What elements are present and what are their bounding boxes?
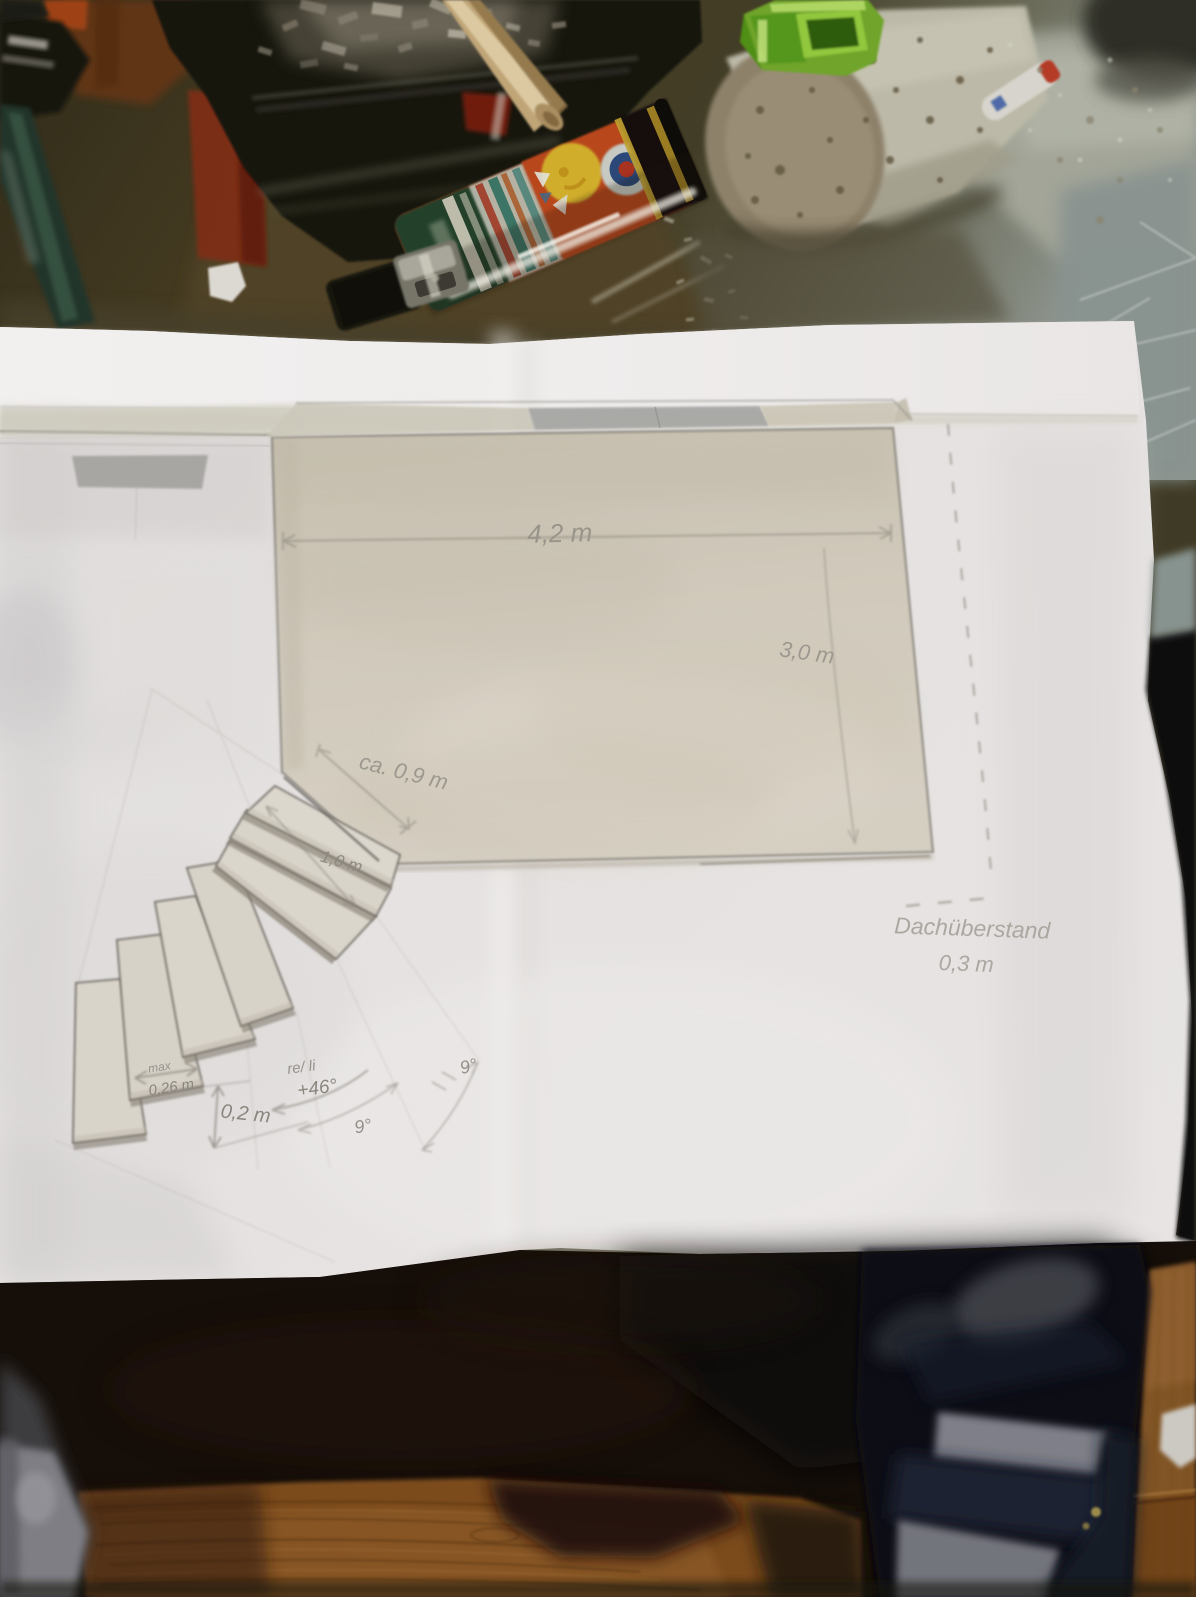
svg-text:Dachüberstand: Dachüberstand [894,912,1052,943]
svg-text:4,2 m: 4,2 m [527,517,593,549]
svg-text:0,3 m: 0,3 m [938,950,994,977]
svg-text:9°: 9° [353,1115,373,1138]
